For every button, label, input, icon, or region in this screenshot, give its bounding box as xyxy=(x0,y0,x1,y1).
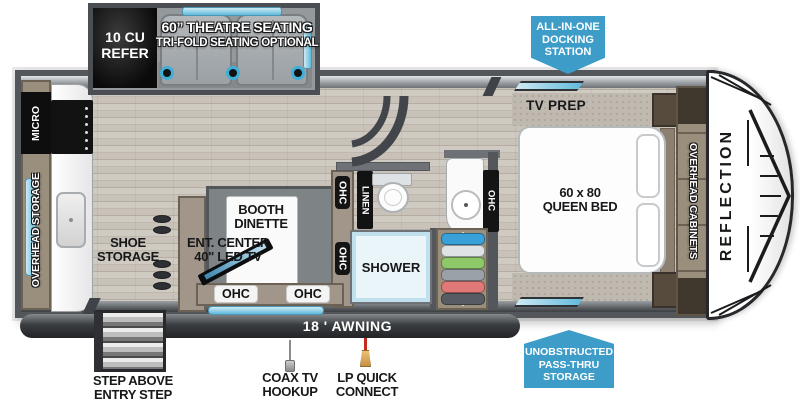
passthru-badge-line: PASS-THRU xyxy=(539,359,599,372)
kitchen-sink-icon xyxy=(56,192,86,248)
refrigerator: 10 CU REFER xyxy=(93,8,157,88)
ohc-label: OHC xyxy=(214,285,258,303)
bedroom-window-icon xyxy=(514,81,584,91)
toilet-icon xyxy=(377,182,409,213)
shower-stall: SHOWER xyxy=(352,232,430,302)
docking-badge-line: STATION xyxy=(545,46,592,59)
overhead-cabinets-label: OVERHEAD CABINETS xyxy=(676,86,710,316)
docking-station-badge: ALL-IN-ONE DOCKING STATION xyxy=(531,16,605,74)
clothes-icon xyxy=(441,281,485,293)
bed-platform xyxy=(512,273,664,301)
ohc-label: OHC xyxy=(335,176,350,209)
coax-hookup-icon xyxy=(289,340,291,362)
brand-label: REFLECTION xyxy=(712,100,742,290)
passthru-storage-badge: UNOBSTRUCTED PASS-THRU STORAGE xyxy=(524,330,614,388)
clothes-icon xyxy=(441,269,485,281)
dinette-window-icon xyxy=(208,306,324,315)
shoe-storage-label: SHOE STORAGE xyxy=(92,236,164,263)
clothes-icon xyxy=(441,245,485,257)
docking-badge-line: ALL-IN-ONE xyxy=(536,21,600,34)
booth-dinette-label: BOOTH DINETTE xyxy=(226,203,296,230)
clothes-icon xyxy=(441,257,485,269)
cupholder-icon xyxy=(226,66,240,80)
clothes-icon xyxy=(441,293,485,305)
lp-connect-icon xyxy=(364,338,367,351)
entry-steps xyxy=(94,310,166,372)
bathroom-wall xyxy=(336,162,430,171)
shoe-icon xyxy=(153,226,171,234)
queen-bed-label: 60 x 80 QUEEN BED xyxy=(530,186,630,213)
ent-center-label: ENT. CENTER 40" LED TV xyxy=(180,236,276,263)
ohc-label: OHC xyxy=(335,242,350,275)
vanity-sink-icon xyxy=(451,190,481,220)
microwave-label: MICRO xyxy=(21,92,51,154)
slideout-window-icon xyxy=(182,7,282,16)
shoe-icon xyxy=(153,215,171,223)
docking-badge-line: DOCKING xyxy=(542,34,594,47)
awning-label: 18 ' AWNING xyxy=(303,318,392,334)
shower-label: SHOWER xyxy=(362,260,421,275)
cupholder-icon xyxy=(160,66,174,80)
passthru-badge-line: UNOBSTRUCTED xyxy=(525,346,613,359)
linen-label: LINEN xyxy=(357,171,373,229)
stove-icon xyxy=(51,100,93,154)
coax-hookup-label: COAX TV HOOKUP xyxy=(250,371,330,398)
pillow-icon xyxy=(636,134,660,198)
shoe-icon xyxy=(153,282,171,290)
clothes-icon xyxy=(441,233,485,245)
entry-step-label: STEP ABOVE ENTRY STEP xyxy=(68,374,198,400)
wardrobe-wall xyxy=(488,228,498,310)
theatre-seating-label: 60” THEATRE SEATING xyxy=(158,20,316,35)
ohc-label: OHC xyxy=(483,170,499,232)
refrigerator-label: 10 CU REFER xyxy=(101,29,148,61)
overhead-storage-label: OVERHEAD STORAGE xyxy=(20,148,52,312)
rv-floorplan: 10 CU REFER 60” THEATRE SEATING TRI-FOLD… xyxy=(0,0,800,400)
bedroom-window-icon xyxy=(514,297,584,307)
ohc-label: OHC xyxy=(286,285,330,303)
trifold-optional-label: TRI-FOLD SEATING OPTIONAL xyxy=(156,37,318,49)
pillow-icon xyxy=(636,203,660,267)
lp-connect-icon xyxy=(360,350,371,367)
cupholder-icon xyxy=(291,66,305,80)
passthru-badge-line: STORAGE xyxy=(543,371,595,384)
tv-prep-label: TV PREP xyxy=(508,99,604,113)
shoe-icon xyxy=(153,271,171,279)
lp-connect-label: LP QUICK CONNECT xyxy=(330,371,404,398)
